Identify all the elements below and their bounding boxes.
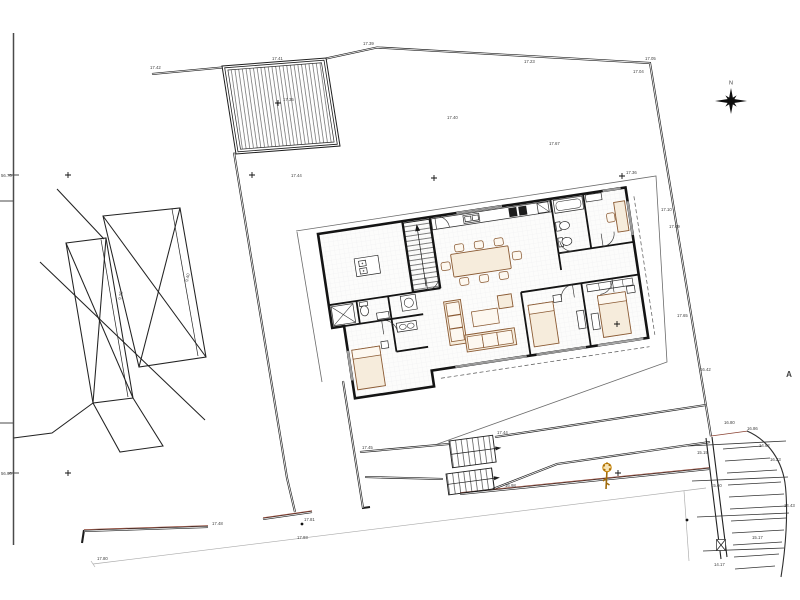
elevation-label: 9.40 <box>184 272 191 282</box>
elevation-label: 15.17 <box>752 535 763 540</box>
house-floor-plan <box>318 186 658 400</box>
survey-cross-marker <box>65 172 71 178</box>
exterior-stairs-upper <box>449 434 503 467</box>
section-marker-a: A <box>786 370 792 379</box>
elevation-label: 17.05 <box>645 56 656 61</box>
elevation-label: 17.44 <box>497 430 508 435</box>
elevation-label: 17.35 <box>283 97 294 102</box>
elevation-label: 14.43 <box>784 503 795 508</box>
elevation-label: 17.81 <box>304 517 315 522</box>
elevation-label: 16.80 <box>724 420 735 425</box>
elevation-label: 17.42 <box>150 65 161 70</box>
survey-cross-marker <box>431 175 437 181</box>
elevation-label: 17.04 <box>633 69 644 74</box>
elevation-label: 17.65 <box>677 313 688 318</box>
lower-terraces <box>82 381 748 543</box>
utility-box-icon <box>717 540 726 551</box>
desk-chair <box>606 212 615 222</box>
elevation-label: 15.60 <box>711 483 722 488</box>
elevation-label: 17.39 <box>363 41 374 46</box>
washing-machine <box>400 294 417 311</box>
frame-edge-lines <box>0 33 19 545</box>
site-plan-canvas: N A 17.4217.4117.3917.3517.2317.0517.041… <box>0 0 800 600</box>
elevation-label: 17.36 <box>626 170 637 175</box>
elevation-label: 16.23 <box>770 457 781 462</box>
survey-dot-marker <box>686 519 689 522</box>
elevation-label: 17.09 <box>669 224 680 229</box>
elevation-label: 17.44 <box>291 173 302 178</box>
elevation-label: 14.62 <box>759 443 770 448</box>
elevation-label: 16.86 <box>747 426 758 431</box>
survey-cross-marker <box>249 172 255 178</box>
pergola-deck <box>222 58 340 154</box>
north-label: N <box>729 81 733 87</box>
elevation-label: 16.98 <box>505 483 516 488</box>
elevation-label: 17.40 <box>447 115 458 120</box>
elevation-label: 14.17 <box>714 562 725 567</box>
elevation-label: 56.90 <box>1 471 12 476</box>
north-compass-icon: N <box>715 81 747 115</box>
pantry-room <box>354 255 380 276</box>
existing-structures-x <box>14 189 207 452</box>
survey-cross-marker <box>619 173 625 179</box>
elevation-label: 17.45 <box>362 445 373 450</box>
elevation-label: 17.80 <box>97 556 108 561</box>
elevation-label: 17.67 <box>549 141 560 146</box>
washbasin <box>376 311 389 319</box>
slope-hatch <box>723 446 786 569</box>
elevation-label: 17.93 <box>297 535 308 540</box>
elevation-label: 56.70 <box>1 173 12 178</box>
survey-cross-marker <box>65 470 71 476</box>
armchair <box>497 294 513 309</box>
elevation-label: 17.10 <box>661 207 672 212</box>
survey-cross-marker <box>615 470 621 476</box>
elevation-label: 17.41 <box>272 56 283 61</box>
elevation-label: 15.19 <box>697 450 708 455</box>
elevation-label: 17.23 <box>524 59 535 64</box>
tree-icon <box>603 462 611 489</box>
cooktop <box>508 207 517 217</box>
elevation-label: 17.48 <box>212 521 223 526</box>
elevation-label: 16.42 <box>700 367 711 372</box>
survey-dot-marker <box>301 523 304 526</box>
